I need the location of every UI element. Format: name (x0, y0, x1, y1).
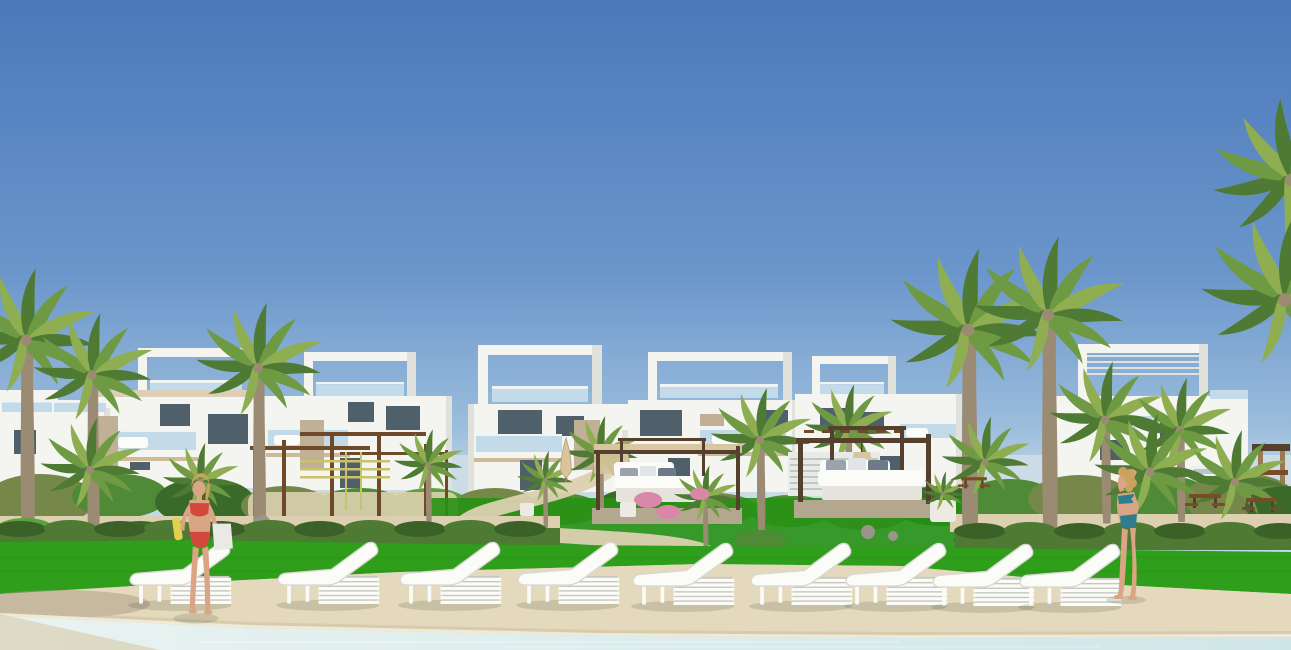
water-ripple (500, 646, 1100, 648)
scene-canvas (0, 0, 1291, 650)
water-ripple (200, 641, 900, 643)
resort-render (0, 0, 1291, 650)
